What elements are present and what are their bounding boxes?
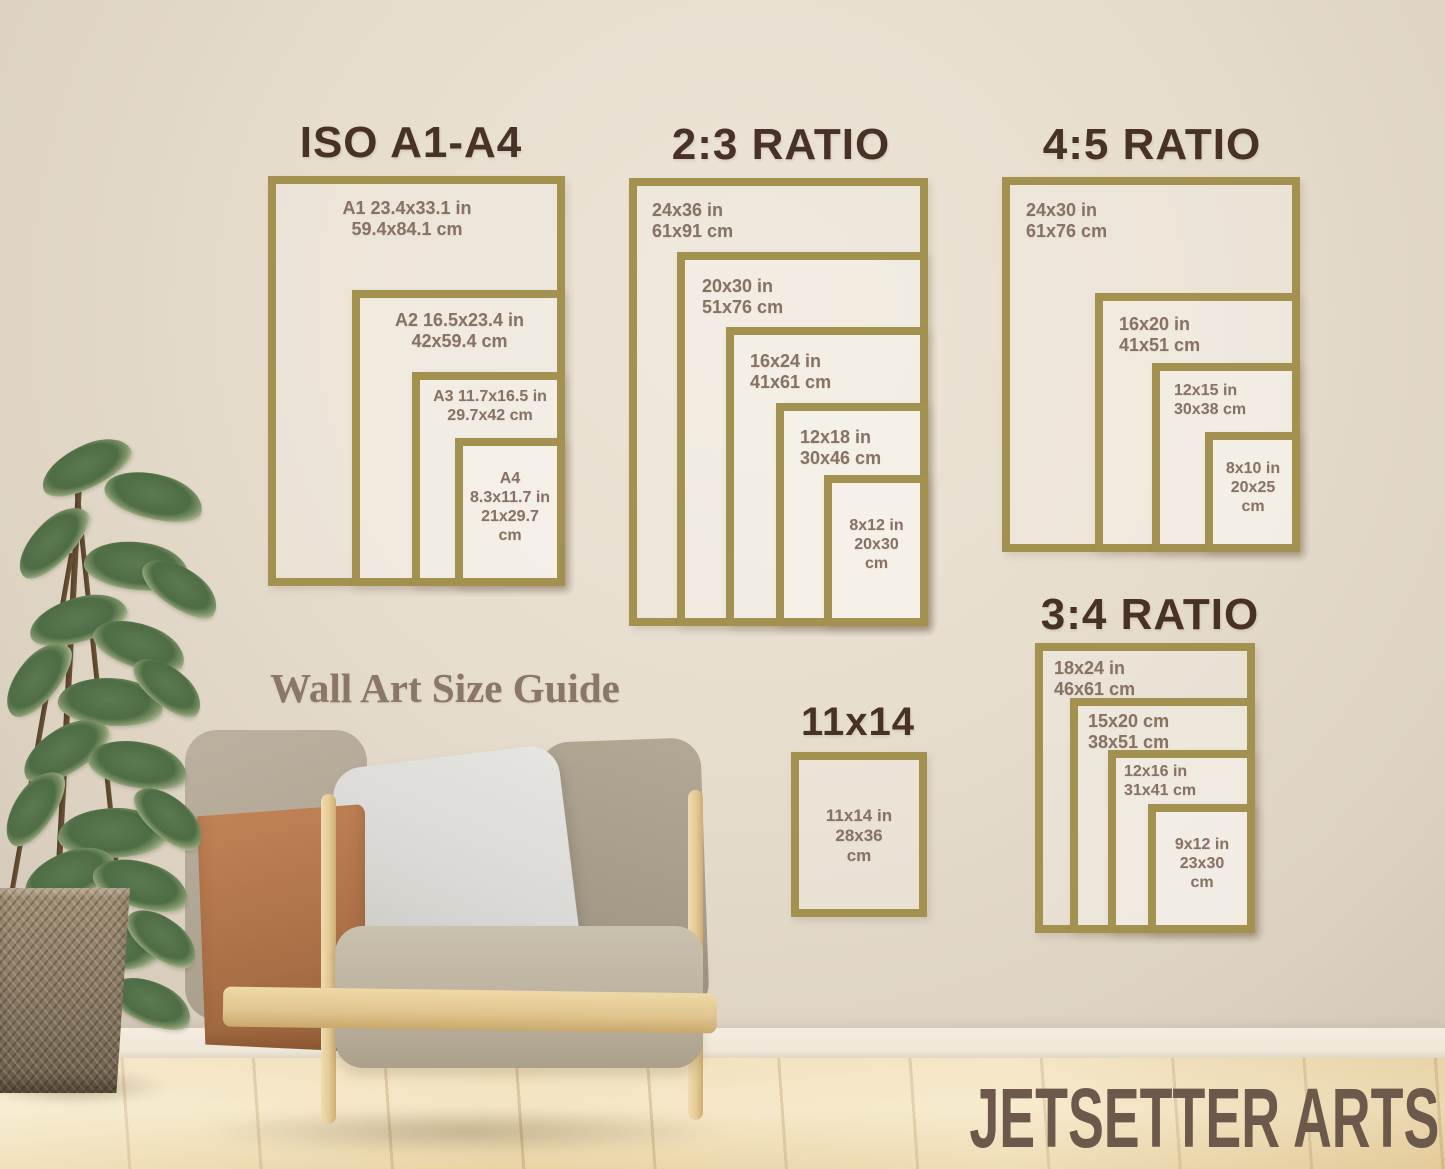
section-title-3-4: 3:4 RATIO (1041, 590, 1259, 640)
size-label-15x20: 15x20 cm 38x51 cm (1088, 711, 1169, 753)
size-line: 15x20 cm (1088, 711, 1169, 732)
size-label-a4: A4 8.3x11.7 in 21x29.7 cm (459, 470, 561, 546)
size-line: A2 16.5x23.4 in (362, 310, 557, 331)
size-line: 24x36 in (652, 200, 733, 221)
plant-basket (0, 888, 130, 1093)
size-label-8x10: 8x10 in 20x25 cm (1211, 460, 1295, 517)
size-line: 11x14 in (799, 806, 919, 826)
size-line: 21x29.7 (459, 508, 561, 527)
size-line: 30x46 cm (800, 448, 881, 469)
size-line: 8.3x11.7 in (459, 489, 561, 508)
size-label-11x14: 11x14 in 28x36 cm (799, 806, 919, 866)
size-line: cm (830, 555, 923, 574)
size-line: 18x24 in (1054, 658, 1135, 679)
size-label-12x16: 12x16 in 31x41 cm (1124, 763, 1196, 801)
size-line: 61x91 cm (652, 221, 733, 242)
size-label-16x24: 16x24 in 41x61 cm (750, 351, 831, 393)
size-line: cm (1211, 498, 1295, 517)
size-line: A1 23.4x33.1 in (287, 198, 527, 219)
plant-illustration (0, 430, 210, 1130)
size-line: A4 (459, 470, 561, 489)
size-line: 41x61 cm (750, 372, 831, 393)
size-label-16x20: 16x20 in 41x51 cm (1119, 314, 1200, 356)
size-line: 12x16 in (1124, 763, 1196, 782)
size-line: 8x12 in (830, 517, 923, 536)
size-line: 38x51 cm (1088, 732, 1169, 753)
size-line: 46x61 cm (1054, 679, 1135, 700)
size-label-12x15: 12x15 in 30x38 cm (1174, 382, 1246, 420)
section-title-11x14: 11x14 (801, 700, 915, 745)
size-line: A3 11.7x16.5 in (420, 388, 560, 407)
size-label-9x12: 9x12 in 23x30 cm (1156, 836, 1248, 893)
size-label-a3: A3 11.7x16.5 in 29.7x42 cm (420, 388, 560, 426)
scene: ISO A1-A4 A1 23.4x33.1 in 59.4x84.1 cm A… (0, 0, 1445, 1169)
size-line: 9x12 in (1156, 836, 1248, 855)
size-line: 30x38 cm (1174, 401, 1246, 420)
chair-leg-front-left (301, 1016, 331, 1145)
size-line: 51x76 cm (702, 297, 783, 318)
section-title-iso: ISO A1-A4 (300, 118, 523, 168)
size-line: 16x24 in (750, 351, 831, 372)
size-label-24x30: 24x30 in 61x76 cm (1026, 200, 1107, 242)
size-label-18x24: 18x24 in 46x61 cm (1054, 658, 1135, 700)
size-label-12x18: 12x18 in 30x46 cm (800, 427, 881, 469)
size-line: 31x41 cm (1124, 782, 1196, 801)
size-line: 24x30 in (1026, 200, 1107, 221)
brand-watermark: JETSETTER ARTS (969, 1070, 1439, 1167)
size-line: 41x51 cm (1119, 335, 1200, 356)
section-title-4-5: 4:5 RATIO (1043, 120, 1261, 170)
size-line: 12x18 in (800, 427, 881, 448)
guide-caption: Wall Art Size Guide (240, 664, 650, 712)
size-line: cm (799, 846, 919, 866)
size-label-24x36: 24x36 in 61x91 cm (652, 200, 733, 242)
size-line: 42x59.4 cm (362, 331, 557, 352)
size-line: 28x36 (799, 826, 919, 846)
section-title-2-3: 2:3 RATIO (672, 120, 890, 170)
chair-leg-front-right (551, 1023, 581, 1142)
size-line: 8x10 in (1211, 460, 1295, 479)
size-label-8x12: 8x12 in 20x30 cm (830, 517, 923, 574)
size-label-a2: A2 16.5x23.4 in 42x59.4 cm (362, 310, 557, 352)
size-line: 20x25 (1211, 479, 1295, 498)
size-line: 29.7x42 cm (420, 407, 560, 426)
size-line: cm (1156, 874, 1248, 893)
size-line: 23x30 (1156, 855, 1248, 874)
size-line: 61x76 cm (1026, 221, 1107, 242)
size-line: 59.4x84.1 cm (287, 219, 527, 240)
size-line: 16x20 in (1119, 314, 1200, 335)
size-line: 20x30 in (702, 276, 783, 297)
size-line: 20x30 (830, 536, 923, 555)
armchair-illustration (185, 728, 725, 1168)
size-label-a1: A1 23.4x33.1 in 59.4x84.1 cm (287, 198, 527, 240)
size-line: cm (459, 527, 561, 546)
size-label-20x30: 20x30 in 51x76 cm (702, 276, 783, 318)
chair-base-rail (223, 987, 718, 1034)
size-line: 12x15 in (1174, 382, 1246, 401)
